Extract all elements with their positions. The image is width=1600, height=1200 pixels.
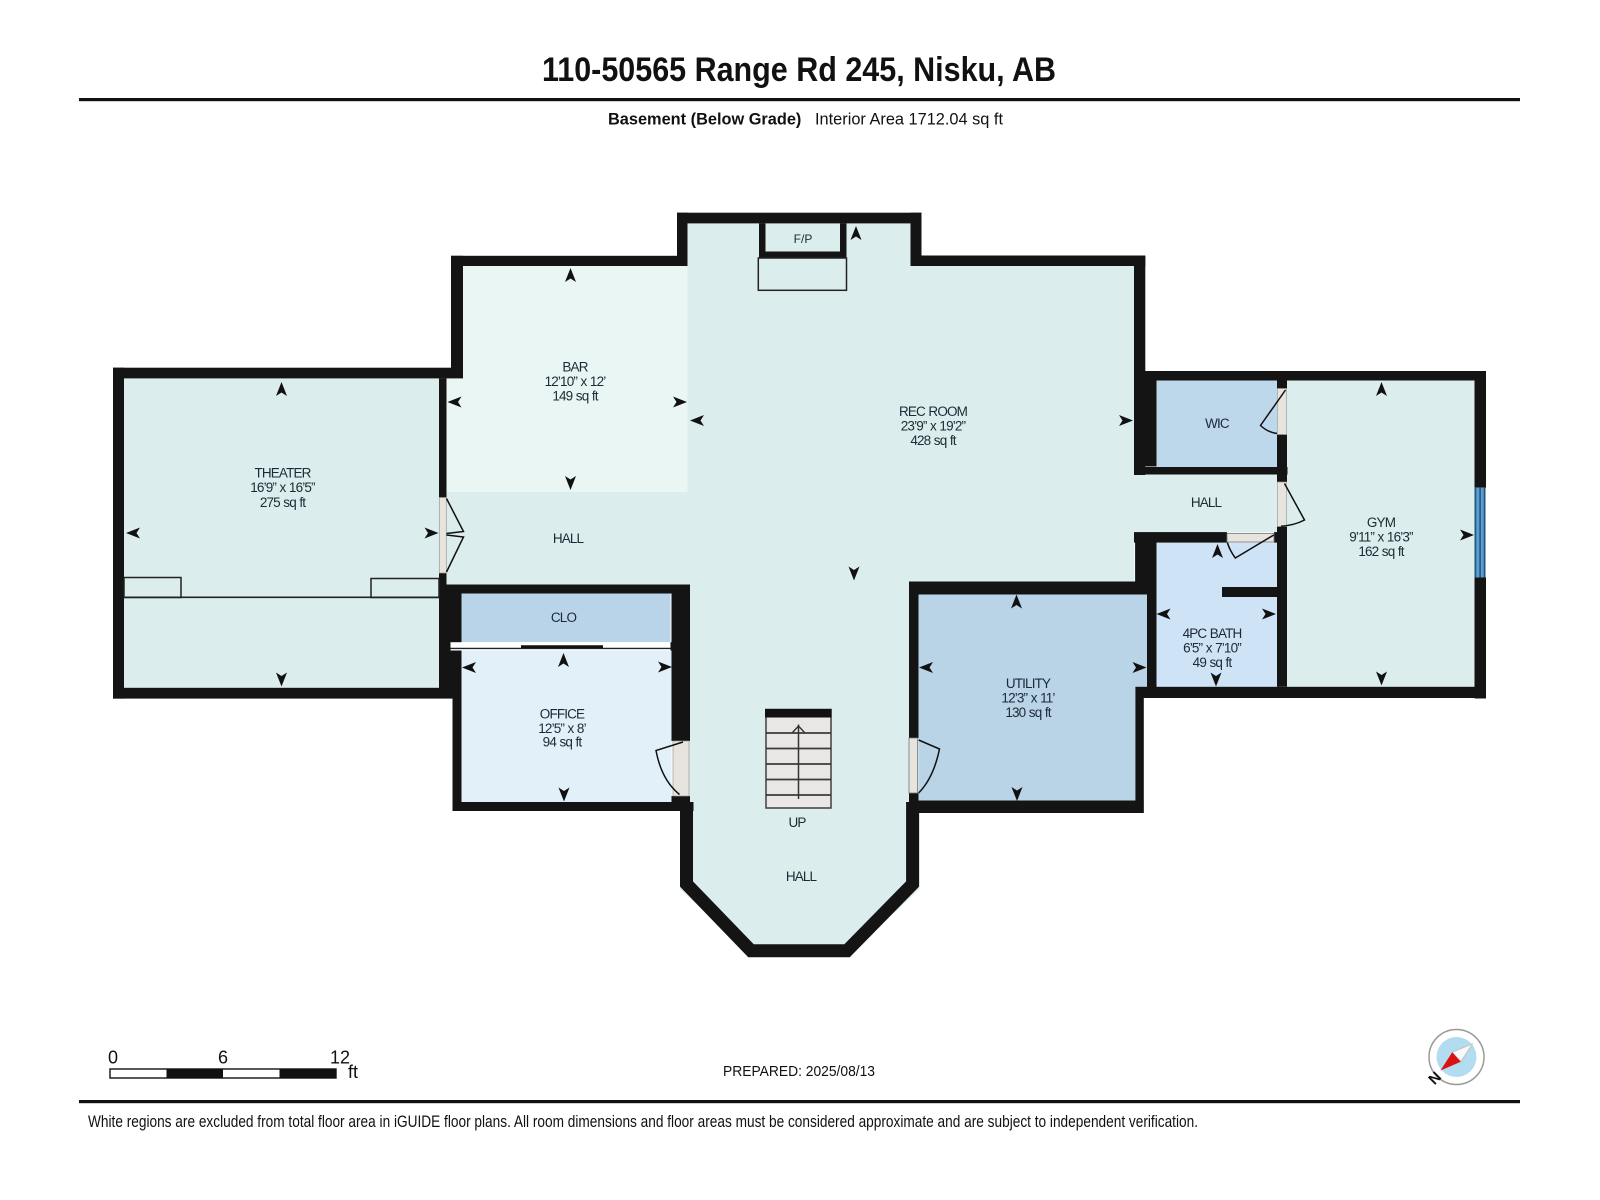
svg-text:WIC: WIC [1205,416,1230,431]
svg-text:428 sq ft: 428 sq ft [910,433,956,448]
svg-text:UTILITY: UTILITY [1006,676,1051,691]
svg-text:23’9” x 19’2”: 23’9” x 19’2” [901,419,966,434]
svg-text:9’11” x 16’3”: 9’11” x 16’3” [1349,530,1413,545]
svg-text:THEATER: THEATER [254,466,311,481]
svg-text:HALL: HALL [553,531,585,546]
svg-text:6: 6 [218,1048,228,1068]
svg-text:275 sq ft: 275 sq ft [260,495,306,510]
svg-text:162 sq ft: 162 sq ft [1358,544,1404,559]
svg-text:149 sq ft: 149 sq ft [552,389,598,404]
svg-text:F/P: F/P [794,232,813,246]
svg-text:CLO: CLO [551,610,577,625]
svg-text:12’3” x 11’: 12’3” x 11’ [1001,690,1055,705]
svg-text:UP: UP [788,815,806,830]
svg-text:OFFICE: OFFICE [540,707,585,722]
svg-text:ft: ft [348,1062,358,1082]
svg-text:12: 12 [330,1048,350,1068]
svg-text:HALL: HALL [786,869,818,884]
svg-text:110-50565 Range Rd 245, Nisku,: 110-50565 Range Rd 245, Nisku, AB [542,51,1056,89]
svg-text:GYM: GYM [1367,515,1396,530]
svg-text:12’5” x 8’: 12’5” x 8’ [538,721,586,736]
svg-text:PREPARED: 2025/08/13: PREPARED: 2025/08/13 [723,1063,875,1080]
svg-text:White regions are excluded fro: White regions are excluded from total fl… [88,1113,1198,1131]
svg-text:6’5” x 7’10”: 6’5” x 7’10” [1183,640,1241,655]
svg-text:94 sq ft: 94 sq ft [543,735,583,750]
svg-text:Basement (Below Grade) Inter: Basement (Below Grade) Interior Area 171… [608,110,1003,129]
svg-text:130 sq ft: 130 sq ft [1005,705,1051,720]
svg-text:BAR: BAR [562,360,588,375]
svg-text:49 sq ft: 49 sq ft [1193,655,1233,670]
svg-text:12’10” x 12’: 12’10” x 12’ [545,374,607,389]
svg-text:REC ROOM: REC ROOM [899,404,968,419]
svg-text:HALL: HALL [1191,495,1223,510]
svg-text:16’9” x 16’5”: 16’9” x 16’5” [250,480,315,495]
svg-text:0: 0 [108,1048,118,1068]
svg-text:4PC BATH: 4PC BATH [1183,626,1242,641]
